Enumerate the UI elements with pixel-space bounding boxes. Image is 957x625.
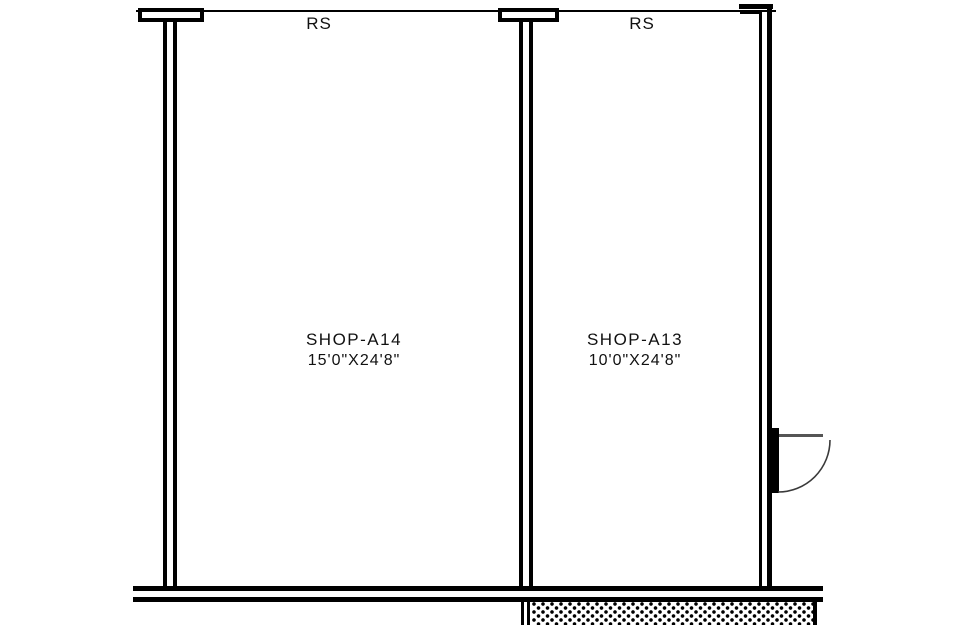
middle-wall-right-line — [529, 21, 533, 586]
floor-plan-canvas: RS RS SHOP-A14 15'0"X24'8" SHOP-A13 10'0… — [0, 0, 957, 625]
room-a13-name: SHOP-A13 — [555, 329, 715, 350]
middle-wall-stub-left — [521, 602, 524, 625]
middle-wall-left-line — [519, 21, 523, 586]
right-wall-outer-line — [767, 4, 772, 591]
door-swing-arc — [774, 434, 836, 496]
room-a14-dimensions: 15'0"X24'8" — [274, 350, 434, 371]
left-wall-inner-line — [163, 21, 167, 586]
top-wall-line — [136, 10, 776, 12]
room-a13-label: SHOP-A13 10'0"X24'8" — [555, 329, 715, 371]
right-wall-inner-line — [759, 11, 762, 588]
bottom-wall-line — [133, 586, 823, 591]
room-a14-label: SHOP-A14 15'0"X24'8" — [274, 329, 434, 371]
room-a13-dimensions: 10'0"X24'8" — [555, 350, 715, 371]
left-wall-pilaster-cap — [138, 8, 204, 22]
room-a13-rs-label: RS — [614, 14, 670, 34]
sidewalk-hatch — [532, 602, 817, 625]
room-a14-rs-label: RS — [291, 14, 347, 34]
middle-wall-stub-right — [527, 602, 530, 625]
left-wall-outer-line — [173, 21, 177, 586]
room-a14-name: SHOP-A14 — [274, 329, 434, 350]
middle-wall-pilaster-cap — [498, 8, 559, 22]
right-wall-corner-cap-inner — [740, 11, 761, 14]
